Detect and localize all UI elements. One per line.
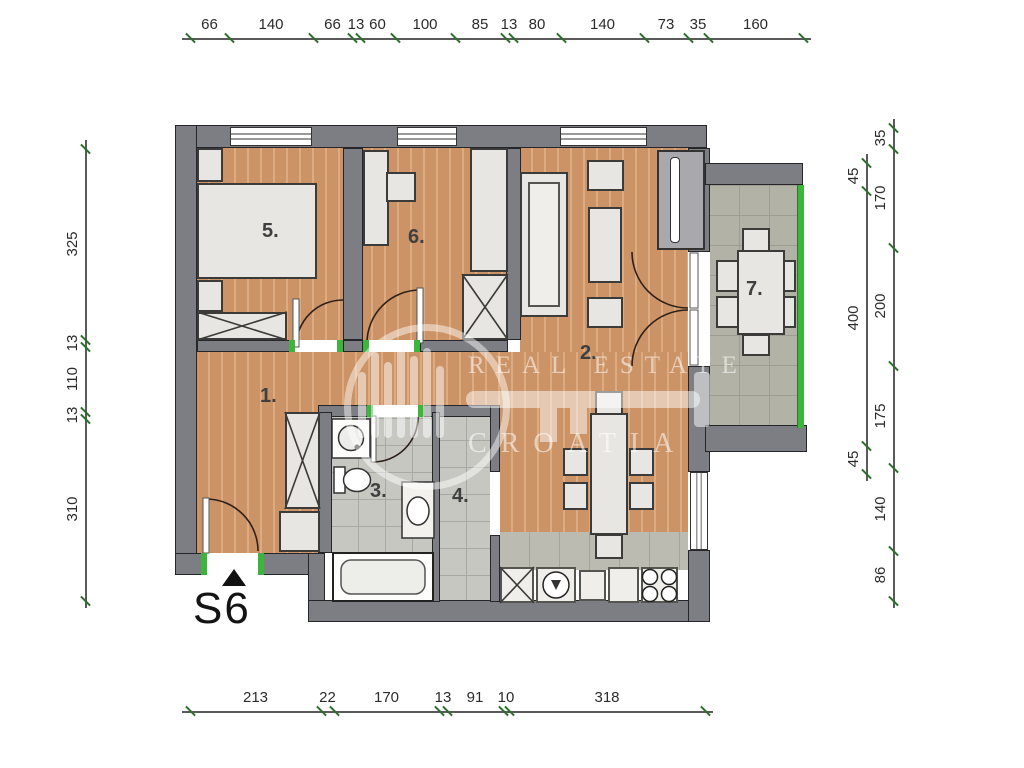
dimension-label: 140 [872,486,890,532]
cooktop-burner [662,570,677,585]
dimension-label: 213 [228,689,284,706]
terrace-edge [797,185,804,428]
dimension-line [182,38,811,40]
door-swing-bedroom6 [367,290,420,343]
washing-machine-drum [407,497,429,525]
room-label-7: 7. [746,278,763,301]
dimension-line [866,154,868,481]
dimension-label: 13 [64,392,82,438]
cooktop-burner [643,570,658,585]
door-leaf [371,416,376,462]
dimension-label: 80 [509,16,565,33]
washbasin-bowl [339,426,364,451]
dimension-label: 35 [670,16,726,33]
room-label-1: 1. [260,385,277,408]
dimension-label: 170 [872,175,890,221]
door-jamb-marker [418,405,424,417]
dimension-label: 100 [397,16,453,33]
dimension-label: 325 [64,221,82,267]
dimension-label: 170 [359,689,415,706]
dimension-label: 200 [872,283,890,329]
room-label-6: 6. [408,226,425,249]
door-jamb-marker [367,405,373,417]
dimension-label: 310 [64,486,82,532]
dimension-label: 175 [872,393,890,439]
door-leaf [690,310,698,365]
cooktop-burner [662,587,677,602]
door-swing-bathroom [373,417,418,462]
door-leaf [417,288,423,343]
bathtub-basin [341,560,425,594]
cooktop-burner [643,587,658,602]
washbasin-drain [355,445,360,450]
dimension-label: 22 [300,689,356,706]
door-swing-terrace-lower [632,310,688,366]
dimension-label: 66 [182,16,238,33]
door-jamb-marker [289,340,295,352]
room-label-2: 2. [580,342,597,365]
dimension-label: 86 [872,552,890,598]
dimension-label: 45 [845,436,863,482]
toilet-bowl [344,469,371,492]
room-label-4: 4. [452,485,469,508]
dimension-label: 400 [845,295,863,341]
door-jamb-marker [201,553,207,575]
door-leaf [690,253,698,308]
room-label-5: 5. [262,220,279,243]
floor-plan: 1. 2. 3. 4. 5. 6. 7. S6 REAL ESTATE CROA… [0,0,1024,768]
door-leaf [203,498,209,553]
dimension-label: 10 [478,689,534,706]
unit-label: S6 [193,584,251,634]
dimension-label: 35 [872,115,890,161]
door-jamb-marker [258,553,264,575]
dimension-label: 318 [579,689,635,706]
door-swing-entrance [206,499,258,551]
door-jamb-marker [337,340,343,352]
dimension-label: 160 [728,16,784,33]
dimension-label: 140 [243,16,299,33]
door-swing-bedroom5 [296,300,343,347]
door-jamb-marker [414,340,420,352]
door-jamb-marker [363,340,369,352]
door-swing-terrace-upper [632,252,688,308]
room-label-3: 3. [370,480,387,503]
dimension-label: 45 [845,153,863,199]
plan-vector-overlay [0,0,1024,768]
dimension-label: 140 [575,16,631,33]
dimension-line [85,140,87,608]
